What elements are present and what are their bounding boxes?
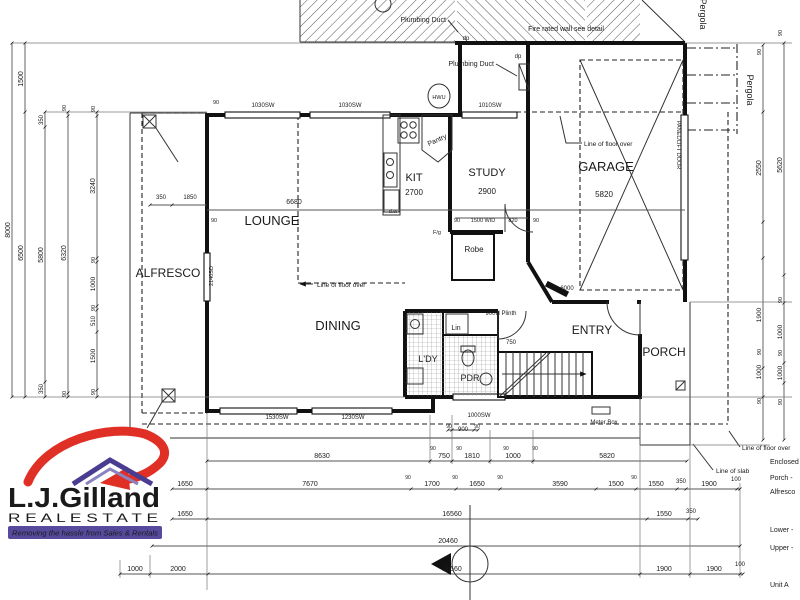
- dim-text: 90: [631, 475, 637, 481]
- dim-text: Pantry: [427, 133, 449, 148]
- dim-text: 1700: [424, 481, 440, 488]
- dim-text: 90: [91, 389, 97, 395]
- window-label: 1030SW: [251, 103, 274, 109]
- dim-text: 2700: [405, 188, 423, 197]
- floor-plan-drawing: ALFRESCOLOUNGEDININGKIT2700STUDY2900GARA…: [0, 0, 800, 600]
- dim-text: 820: [508, 218, 517, 224]
- dim-text: 90: [778, 399, 784, 405]
- room-label-powder: PDR: [460, 373, 480, 383]
- note-slab: Line of slab: [716, 468, 750, 475]
- dim-text: 1000: [505, 453, 521, 460]
- dim-text: 90: [91, 106, 97, 112]
- dim-text: 7670: [302, 481, 318, 488]
- dim-text: 20460: [438, 538, 458, 545]
- window-1230sw: [312, 408, 392, 414]
- dim-text: 900: [458, 427, 469, 433]
- dim-text: Lin: [451, 325, 460, 332]
- note-pergola: Pergola: [698, 0, 708, 30]
- dim-text: 90: [474, 424, 480, 430]
- dim-text: 90: [62, 391, 68, 397]
- dim-text: 1500: [90, 348, 97, 363]
- dim-text: 90: [430, 446, 436, 452]
- dim-text: dp: [463, 36, 470, 42]
- dim-text: 8630: [314, 453, 330, 460]
- garage-panel-lift-door: [681, 115, 688, 260]
- dim-text: 350: [39, 114, 45, 125]
- note-floor-over: Line of floor over: [742, 445, 791, 452]
- room-label-study: STUDY: [468, 167, 506, 179]
- note-meter-box: Meter Box: [590, 420, 617, 426]
- room-label-alfresco: ALFRESCO: [136, 266, 201, 280]
- cooktop: [398, 118, 419, 143]
- room-label-laundry: L'DY: [418, 354, 437, 364]
- dim-text: 6500: [18, 245, 25, 261]
- dim-text: 350: [39, 383, 45, 394]
- note-floor-over: Line of floor over: [584, 141, 633, 148]
- dim-text: 16560: [442, 566, 462, 573]
- note-fire-wall: Fire rated wall see detail: [528, 26, 604, 33]
- dim-text: Robe: [464, 245, 484, 254]
- dim-text: 16560: [442, 511, 462, 518]
- window-1030sw: [310, 112, 390, 118]
- dim-text: 1000: [777, 324, 784, 339]
- dim-text: 1900: [756, 307, 763, 322]
- dim-text: 2140SD: [209, 266, 215, 286]
- dim-text: d.w: [389, 209, 398, 215]
- dim-text: 5620: [777, 157, 784, 173]
- roof-hatch: [300, 0, 685, 42]
- dim-text: 1000: [777, 365, 784, 380]
- schedule-line: Alfresco: [770, 489, 795, 496]
- dim-text: 1810: [464, 453, 480, 460]
- dim-text: 750: [506, 340, 517, 346]
- dim-text: 1000: [756, 364, 763, 379]
- dim-text: 90: [497, 475, 503, 481]
- dim-text: 5800: [38, 247, 45, 263]
- dim-text: 90: [757, 349, 763, 355]
- note-plumbing-duct: Plumbing Duct: [400, 17, 446, 24]
- dim-text: 750: [438, 453, 450, 460]
- dim-text: 2000: [170, 566, 186, 573]
- schedule-line: Lower -: [770, 527, 794, 534]
- meter-box: [592, 407, 610, 414]
- dim-text: 1500 WID: [471, 218, 495, 224]
- dim-text: 90: [454, 218, 460, 224]
- dim-text: 90: [91, 305, 97, 311]
- window-label: 1530SW: [265, 415, 288, 421]
- dim-text: 90: [91, 257, 97, 263]
- logo-tagline: Removing the hassle from Sales & Rentals: [12, 529, 158, 538]
- dim-text: 100: [731, 477, 742, 483]
- dim-text: 6000: [560, 286, 574, 292]
- schedule-line: Unit A: [770, 582, 789, 589]
- schedule-line: Porch -: [770, 475, 793, 482]
- dim-text: 2550: [756, 160, 763, 176]
- agency-logo: L.J.Gilland R E A L E S T A T E Removing…: [0, 428, 170, 540]
- dim-text: 90: [503, 446, 509, 452]
- dim-text: 90: [778, 350, 784, 356]
- hwu-label: HWU: [432, 95, 445, 101]
- dim-text: 90: [532, 446, 538, 452]
- room-label-porch: PORCH: [642, 345, 685, 359]
- schedule-line: Upper -: [770, 545, 794, 552]
- dim-text: 90: [757, 398, 763, 404]
- window-label: 1030SW: [338, 103, 361, 109]
- note-floor-over: Line of floor over: [317, 282, 366, 289]
- window-label: 1010SW: [478, 103, 501, 109]
- dim-text: PANEL/LIFT DOOR: [675, 121, 681, 169]
- dim-text: 90: [211, 218, 217, 224]
- dim-text: 90: [778, 30, 784, 36]
- dim-text: 1650: [469, 481, 485, 488]
- window-label: 1000SW: [467, 413, 490, 419]
- dim-text: 100: [735, 562, 746, 568]
- dim-text: dp: [515, 54, 522, 60]
- door-swings: [498, 204, 640, 339]
- logo-name: L.J.Gilland: [8, 482, 160, 513]
- dim-text: 1500: [608, 481, 624, 488]
- room-label-dining: DINING: [315, 318, 361, 333]
- dim-text: 1650: [177, 511, 193, 518]
- dim-text: 6680: [286, 199, 302, 206]
- dim-text: 90: [456, 446, 462, 452]
- dim-text: 1550: [656, 511, 672, 518]
- window-1010sw: [462, 112, 517, 118]
- dim-text: 3590: [552, 481, 568, 488]
- schedule-line: Enclosed: [770, 459, 799, 466]
- dim-text: 90: [213, 100, 219, 106]
- dim-text: 5820: [595, 190, 613, 199]
- dim-text: 90: [452, 475, 458, 481]
- dim-text: 90: [62, 105, 68, 111]
- dim-text: 90: [533, 218, 539, 224]
- dim-text: 1900: [706, 566, 722, 573]
- staircase: [498, 352, 592, 397]
- dim-text: 350: [156, 195, 167, 201]
- dim-text: 90: [778, 297, 784, 303]
- leader-lines: [300, 20, 740, 470]
- dim-text: 1650: [177, 481, 193, 488]
- dim-text: 8000: [5, 222, 12, 238]
- window-1030sw: [225, 112, 300, 118]
- dim-text: 510: [91, 315, 97, 326]
- dim-text: 900H Plinth: [485, 311, 516, 317]
- note-pergola: Pergola: [745, 74, 755, 105]
- window-1530sw: [220, 408, 297, 414]
- dim-text: F/g: [433, 230, 441, 236]
- dim-text: 1850: [183, 195, 197, 201]
- dim-text: 90: [757, 49, 763, 55]
- dim-text: 1000: [127, 566, 143, 573]
- window-label: 1230SW: [341, 415, 364, 421]
- dim-text: 1000: [90, 276, 97, 291]
- logo-subtitle: R E A L E S T A T E: [8, 511, 158, 525]
- dim-text: 6320: [61, 245, 68, 261]
- note-plumbing-duct: Plumbing Duct: [448, 61, 494, 68]
- dim-text: 1900: [701, 481, 717, 488]
- dim-text: 90: [405, 475, 411, 481]
- dim-text: 90: [446, 424, 452, 430]
- dim-text: 350: [676, 479, 687, 485]
- dim-text: 1550: [648, 481, 664, 488]
- room-label-entry: ENTRY: [572, 323, 612, 337]
- dim-text: 3240: [90, 178, 97, 194]
- room-label-kitchen: KIT: [405, 172, 422, 184]
- floor-plan-page: ALFRESCOLOUNGEDININGKIT2700STUDY2900GARA…: [0, 0, 800, 600]
- room-label-lounge: LOUNGE: [245, 213, 300, 228]
- dim-text: 1900: [656, 566, 672, 573]
- dim-text: 2900: [478, 187, 496, 196]
- room-label-garage: GARAGE: [578, 159, 634, 174]
- dim-text: 5820: [599, 453, 615, 460]
- dim-text: 350: [686, 509, 697, 515]
- dim-text: 1500: [18, 71, 25, 87]
